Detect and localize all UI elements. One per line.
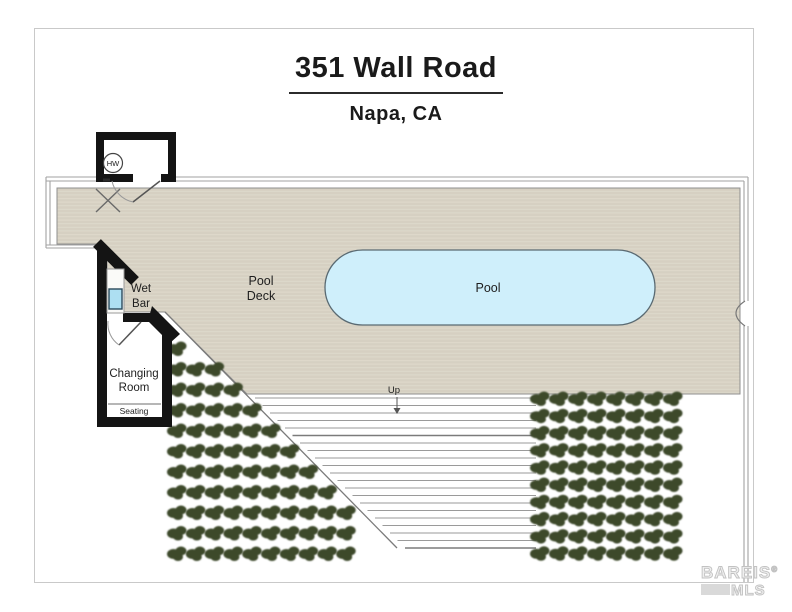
plant-area-right — [530, 392, 683, 561]
sink — [109, 289, 122, 309]
water-heater-label: HW — [107, 159, 120, 168]
pool-deck-label-line2: Deck — [247, 289, 276, 303]
wet-bar-label-line2: Bar — [132, 298, 150, 310]
watermark-sub: MLS — [731, 582, 766, 599]
watermark-name: BAREIS® — [701, 564, 789, 581]
floor-plan-page: 351 Wall Road Napa, CA — [0, 0, 792, 612]
wet-bar — [107, 269, 124, 313]
watermark-bar — [701, 584, 730, 595]
bareis-mls-watermark: BAREIS® MLS — [701, 564, 789, 599]
seating-label: Seating — [120, 406, 149, 416]
stairs-up-marker: Up — [388, 385, 401, 414]
up-label: Up — [388, 385, 400, 396]
pool-label: Pool — [475, 281, 500, 295]
registered-mark: ® — [771, 565, 777, 574]
staircase — [255, 398, 536, 548]
pool-deck-label-line1: Pool — [248, 274, 273, 288]
site-plan: HW Pool Pool Deck Wet — [0, 0, 792, 612]
changing-room-label-line1: Changing — [109, 368, 158, 380]
wet-bar-label-line1: Wet — [131, 283, 152, 295]
changing-room-label-line2: Room — [119, 382, 150, 394]
